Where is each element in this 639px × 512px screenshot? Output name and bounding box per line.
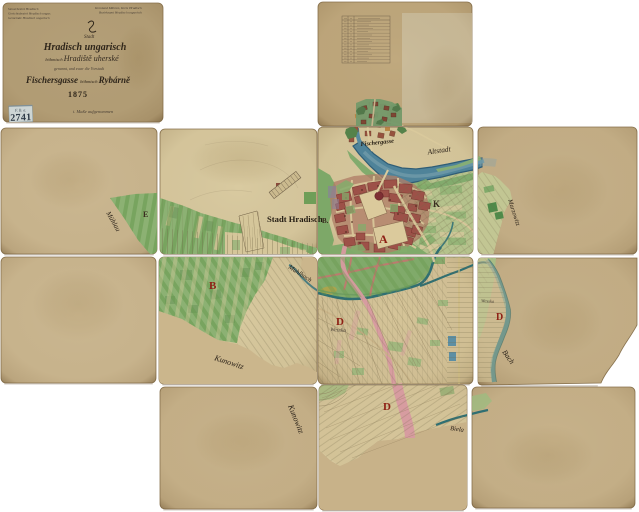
- svg-text:Fischersgasse böhmisch Rybárně: Fischersgasse böhmisch Rybárně: [25, 75, 131, 85]
- svg-text:Gemeinde Hradisch ungarisch: Gemeinde Hradisch ungarisch: [8, 16, 50, 20]
- svg-text:B.: B.: [322, 217, 329, 225]
- svg-text:D: D: [336, 316, 344, 328]
- svg-text:Steuerbezirk Hradisch: Steuerbezirk Hradisch: [8, 7, 39, 11]
- svg-text:Gerichtsbezirk Hradisch ungar.: Gerichtsbezirk Hradisch ungar.: [8, 12, 51, 16]
- svg-text:E: E: [143, 210, 148, 219]
- svg-text:Stadt: Stadt: [84, 35, 95, 40]
- svg-text:1875: 1875: [68, 90, 88, 99]
- svg-text:Bezirksamt Hradisch ungarisch: Bezirksamt Hradisch ungarisch: [99, 11, 142, 15]
- svg-text:D: D: [496, 312, 503, 323]
- svg-text:D: D: [383, 401, 391, 413]
- svg-text:Stadt Hradisch: Stadt Hradisch: [267, 214, 323, 224]
- svg-text:B: B: [209, 280, 217, 292]
- svg-text:Wesska: Wesska: [330, 327, 347, 334]
- svg-text:Wesska: Wesska: [481, 298, 495, 304]
- svg-text:Hradisch ungarisch: Hradisch ungarisch: [43, 42, 127, 53]
- svg-text:A: A: [379, 232, 388, 246]
- svg-text:i. Maße aufgenommen: i. Maße aufgenommen: [73, 109, 114, 114]
- svg-text:K: K: [433, 199, 440, 209]
